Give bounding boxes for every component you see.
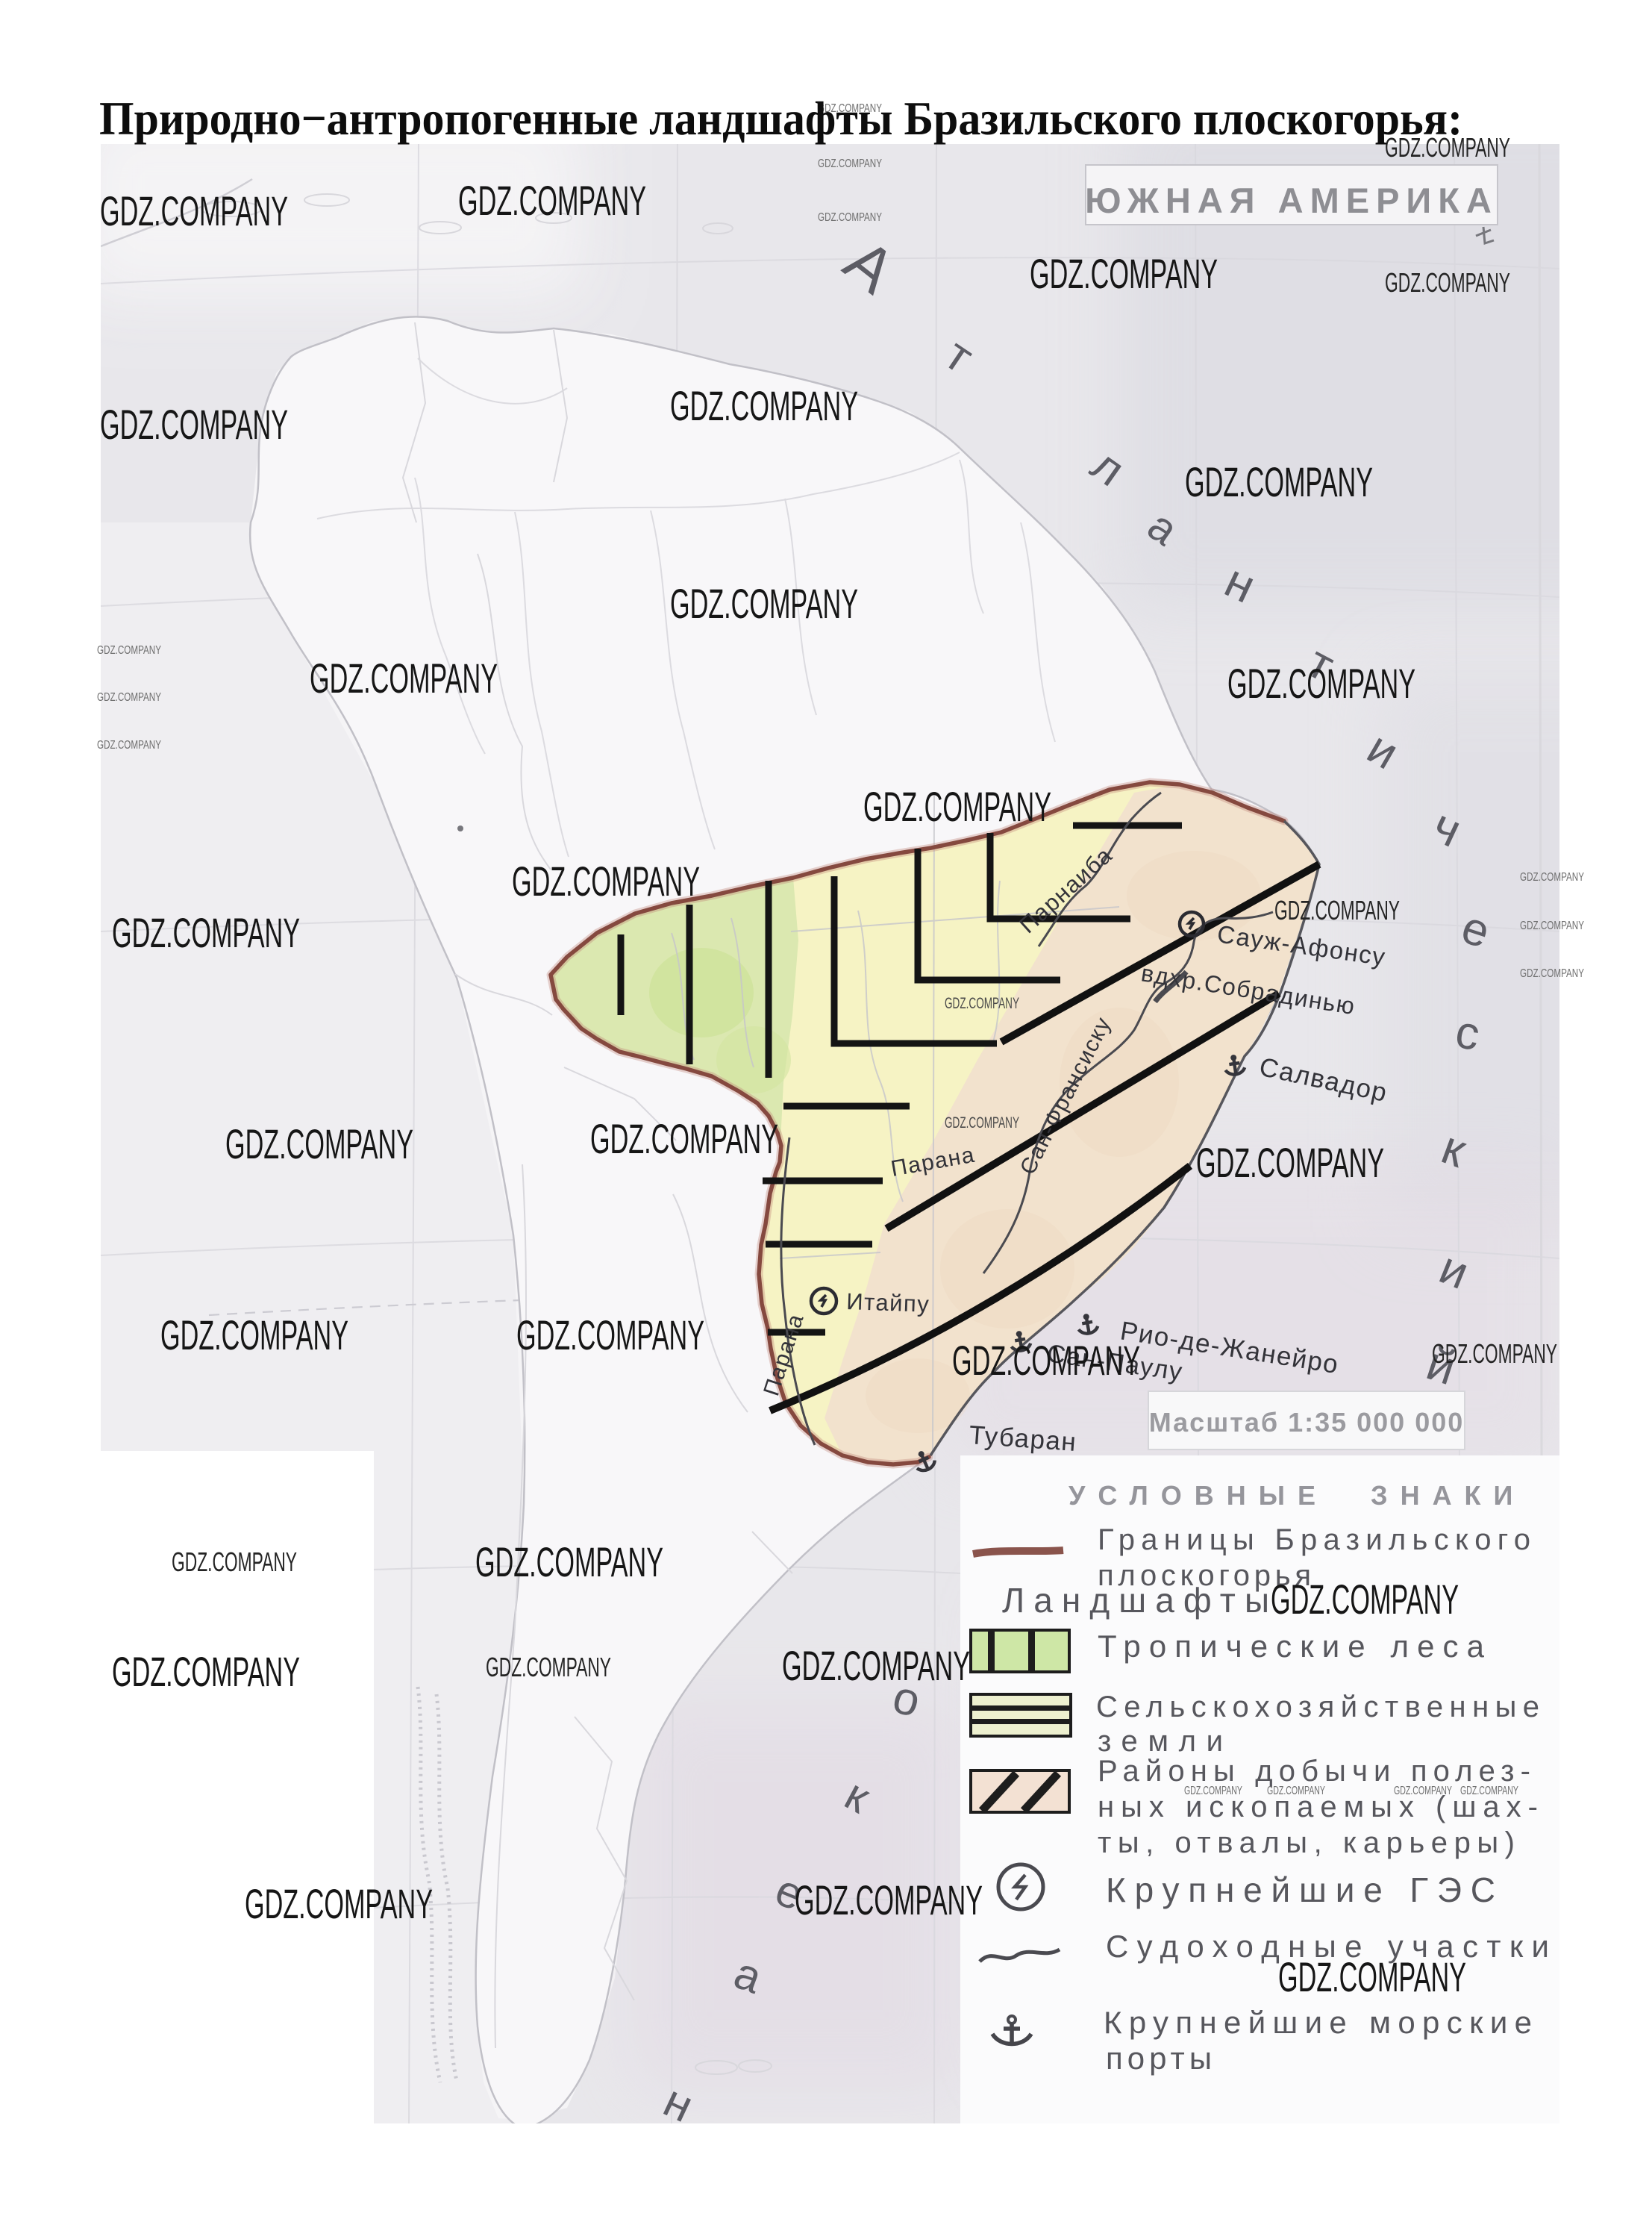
svg-text:GDZ.COMPANY: GDZ.COMPANY [670,382,858,429]
svg-text:GDZ.COMPANY: GDZ.COMPANY [1267,1785,1325,1797]
svg-text:GDZ.COMPANY: GDZ.COMPANY [100,401,288,448]
svg-text:порты: порты [1106,2041,1213,2076]
svg-text:GDZ.COMPANY: GDZ.COMPANY [1460,1785,1518,1797]
svg-text:Районы добычи полез-: Районы добычи полез- [1098,1755,1532,1788]
svg-text:Масштаб 1:35 000 000: Масштаб 1:35 000 000 [1149,1407,1465,1438]
svg-text:GDZ.COMPANY: GDZ.COMPANY [590,1115,778,1162]
svg-text:GDZ.COMPANY: GDZ.COMPANY [97,644,161,657]
svg-text:Крупнейшие ГЭС: Крупнейшие ГЭС [1106,1870,1497,1909]
svg-text:GDZ.COMPANY: GDZ.COMPANY [1185,458,1373,505]
svg-text:Природно−антропогенные ландшаф: Природно−антропогенные ландшафты Бразиль… [99,92,1462,145]
svg-text:ЮЖНАЯ АМЕРИКА: ЮЖНАЯ АМЕРИКА [1085,181,1498,220]
svg-text:GDZ.COMPANY: GDZ.COMPANY [1274,895,1400,926]
svg-text:GDZ.COMPANY: GDZ.COMPANY [945,995,1019,1012]
svg-text:GDZ.COMPANY: GDZ.COMPANY [97,691,161,704]
svg-text:GDZ.COMPANY: GDZ.COMPANY [670,580,858,627]
svg-text:GDZ.COMPANY: GDZ.COMPANY [782,1642,970,1689]
svg-text:Крупнейшие морские: Крупнейшие морские [1104,2005,1533,2040]
svg-text:GDZ.COMPANY: GDZ.COMPANY [112,1648,300,1695]
svg-text:GDZ.COMPANY: GDZ.COMPANY [818,211,882,224]
svg-text:GDZ.COMPANY: GDZ.COMPANY [112,909,300,956]
svg-text:GDZ.COMPANY: GDZ.COMPANY [100,187,288,234]
svg-text:GDZ.COMPANY: GDZ.COMPANY [486,1652,611,1682]
svg-text:Ландшафты: Ландшафты [1002,1581,1271,1620]
svg-text:GDZ.COMPANY: GDZ.COMPANY [475,1538,663,1585]
svg-text:GDZ.COMPANY: GDZ.COMPANY [245,1880,433,1927]
svg-text:GDZ.COMPANY: GDZ.COMPANY [1227,660,1415,707]
svg-text:GDZ.COMPANY: GDZ.COMPANY [1030,250,1218,297]
svg-text:GDZ.COMPANY: GDZ.COMPANY [310,655,498,702]
svg-text:GDZ.COMPANY: GDZ.COMPANY [1520,967,1584,980]
svg-text:GDZ.COMPANY: GDZ.COMPANY [1394,1785,1452,1797]
svg-text:GDZ.COMPANY: GDZ.COMPANY [1184,1785,1242,1797]
svg-text:GDZ.COMPANY: GDZ.COMPANY [225,1120,413,1167]
svg-text:GDZ.COMPANY: GDZ.COMPANY [863,783,1051,830]
svg-text:Тропические леса: Тропические леса [1098,1629,1486,1664]
svg-text:Сельскохозяйственные: Сельскохозяйственные [1096,1691,1541,1723]
svg-text:GDZ.COMPANY: GDZ.COMPANY [945,1114,1019,1132]
svg-text:GDZ.COMPANY: GDZ.COMPANY [512,858,700,905]
svg-text:GDZ.COMPANY: GDZ.COMPANY [172,1547,297,1577]
svg-text:GDZ.COMPANY: GDZ.COMPANY [97,739,161,752]
svg-text:ты, отвалы, карьеры): ты, отвалы, карьеры) [1098,1826,1516,1859]
svg-text:GDZ.COMPANY: GDZ.COMPANY [516,1311,704,1358]
svg-text:GDZ.COMPANY: GDZ.COMPANY [1271,1576,1459,1623]
svg-text:Итайпу: Итайпу [846,1288,930,1317]
svg-text:УСЛОВНЫЕ ЗНАКИ: УСЛОВНЫЕ ЗНАКИ [1069,1480,1525,1511]
svg-text:GDZ.COMPANY: GDZ.COMPANY [1196,1139,1384,1186]
svg-text:GDZ.COMPANY: GDZ.COMPANY [1278,1953,1466,2000]
svg-text:GDZ.COMPANY: GDZ.COMPANY [458,177,646,224]
svg-text:GDZ.COMPANY: GDZ.COMPANY [1432,1338,1557,1369]
svg-text:GDZ.COMPANY: GDZ.COMPANY [952,1337,1140,1384]
svg-text:GDZ.COMPANY: GDZ.COMPANY [160,1311,348,1358]
svg-text:GDZ.COMPANY: GDZ.COMPANY [1385,267,1510,298]
svg-text:GDZ.COMPANY: GDZ.COMPANY [818,157,882,170]
svg-text:GDZ.COMPANY: GDZ.COMPANY [1520,871,1584,884]
svg-text:GDZ.COMPANY: GDZ.COMPANY [795,1876,983,1923]
svg-text:GDZ.COMPANY: GDZ.COMPANY [1520,920,1584,932]
